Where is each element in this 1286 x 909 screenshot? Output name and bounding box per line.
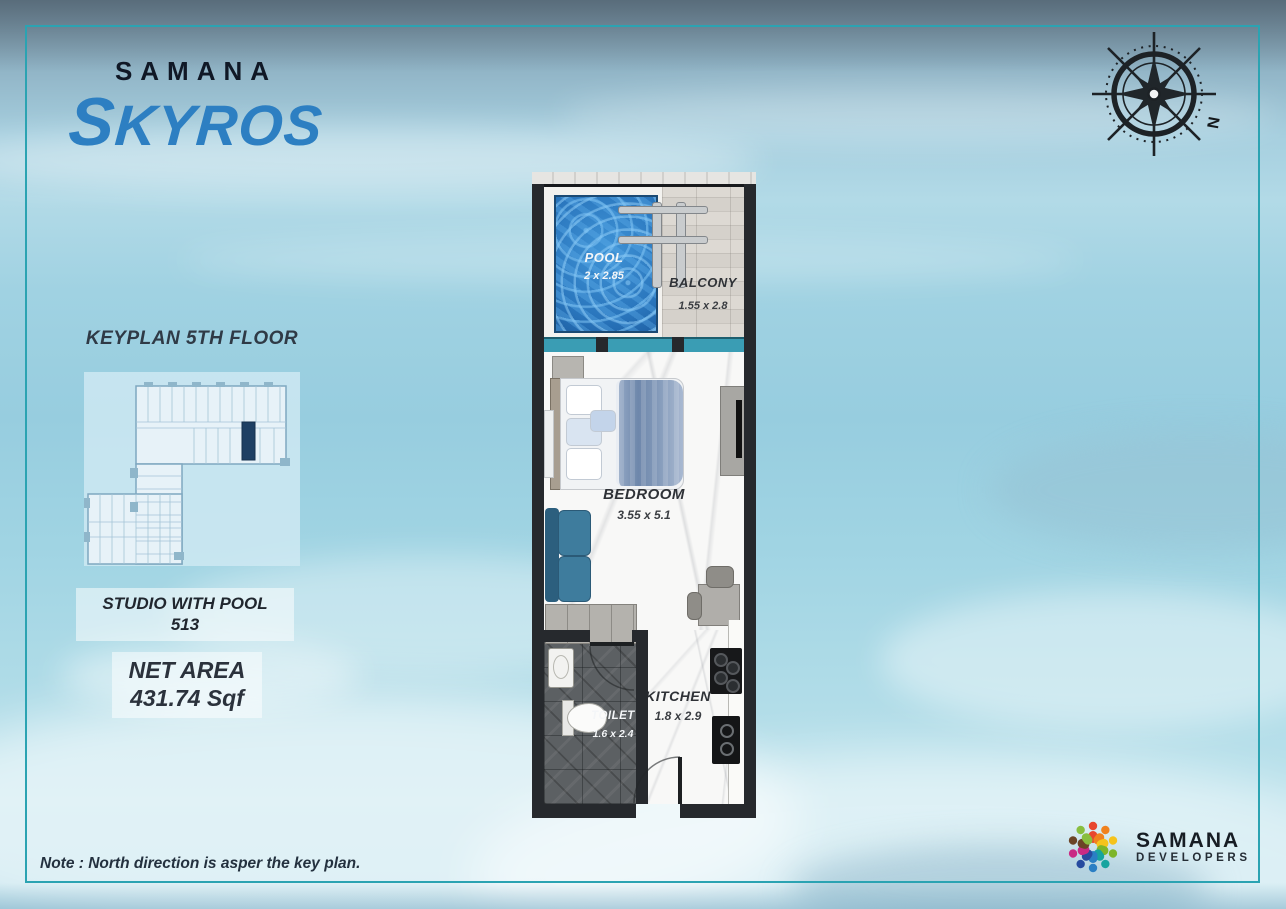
developer-logo: SAMANA DEVELOPERS bbox=[1060, 814, 1251, 880]
sky-bottom-shade bbox=[0, 883, 1286, 909]
keyplan-map bbox=[84, 372, 300, 566]
cloud-mass-4 bbox=[880, 590, 1286, 730]
brand-logo: SAMANA SKYROS bbox=[58, 56, 334, 161]
tv-screen bbox=[736, 400, 742, 458]
net-area-box: NET AREA 431.74 Sqf bbox=[112, 652, 262, 718]
keyplan-highlighted-unit bbox=[242, 422, 255, 460]
brochure-canvas: SAMANA SKYROS N KEYPLAN 5TH FLOOR bbox=[0, 0, 1286, 909]
wall-toilet-top-left bbox=[544, 630, 590, 642]
pool-coping-strip bbox=[532, 172, 756, 184]
net-area-value: 431.74 Sqf bbox=[112, 684, 262, 712]
keyplan-title: KEYPLAN 5TH FLOOR bbox=[84, 328, 300, 350]
bathroom-sink bbox=[548, 648, 574, 688]
wall-right bbox=[744, 184, 756, 818]
brand-skyros-text: SKYROS bbox=[55, 83, 336, 161]
dining-chair bbox=[687, 592, 702, 620]
net-area-label: NET AREA bbox=[112, 656, 262, 684]
north-direction-note: Note : North direction is asper the key … bbox=[40, 855, 360, 873]
kitchen-sink bbox=[712, 716, 740, 764]
unit-type-name: STUDIO WITH POOL bbox=[76, 593, 294, 614]
unit-type-box: STUDIO WITH POOL 513 bbox=[76, 588, 294, 641]
balcony-dims: 1.55 x 2.8 bbox=[662, 300, 744, 312]
pool-label: POOL bbox=[554, 250, 654, 265]
wall-toilet-kitchen bbox=[636, 642, 648, 804]
ladder-rail-bottom bbox=[618, 236, 708, 244]
bed-pillow bbox=[590, 410, 616, 432]
floorplan: POOL 2 x 2.85 BALCONY 1.55 x 2.8 bbox=[532, 172, 756, 818]
sofa bbox=[545, 508, 589, 602]
bed bbox=[550, 378, 682, 488]
tv-unit bbox=[720, 386, 746, 476]
compass-rose-icon: N bbox=[1088, 28, 1226, 166]
bedroom-label: BEDROOM bbox=[564, 486, 724, 503]
bed-pillow bbox=[566, 448, 602, 480]
pool-dims: 2 x 2.85 bbox=[554, 270, 654, 282]
stove-burner bbox=[726, 661, 740, 675]
sofa-cushion bbox=[558, 556, 591, 602]
stove-burner bbox=[726, 679, 740, 693]
unit-number: 513 bbox=[76, 614, 294, 635]
dining-chair bbox=[706, 566, 734, 588]
bed-blanket bbox=[616, 380, 683, 486]
developer-subtitle: DEVELOPERS bbox=[1136, 852, 1251, 864]
sofa-backrest bbox=[545, 508, 559, 602]
ladder-rail-top bbox=[618, 206, 708, 214]
wall-bottom-left bbox=[532, 804, 636, 818]
kitchen-label: KITCHEN bbox=[636, 688, 720, 704]
wall-bottom-right bbox=[680, 804, 756, 818]
developer-name: SAMANA bbox=[1136, 830, 1251, 852]
cloud-mass-5 bbox=[990, 430, 1286, 550]
balcony-label: BALCONY bbox=[662, 275, 744, 290]
bedside-shelf bbox=[544, 410, 554, 478]
kitchen-dims: 1.8 x 2.9 bbox=[636, 709, 720, 723]
compass-north-label: N bbox=[1203, 115, 1222, 129]
bedroom-dims: 3.55 x 5.1 bbox=[564, 508, 724, 522]
wall-toilet-top-right bbox=[632, 630, 648, 642]
wall-left bbox=[532, 184, 544, 818]
developer-burst-icon bbox=[1060, 814, 1126, 880]
